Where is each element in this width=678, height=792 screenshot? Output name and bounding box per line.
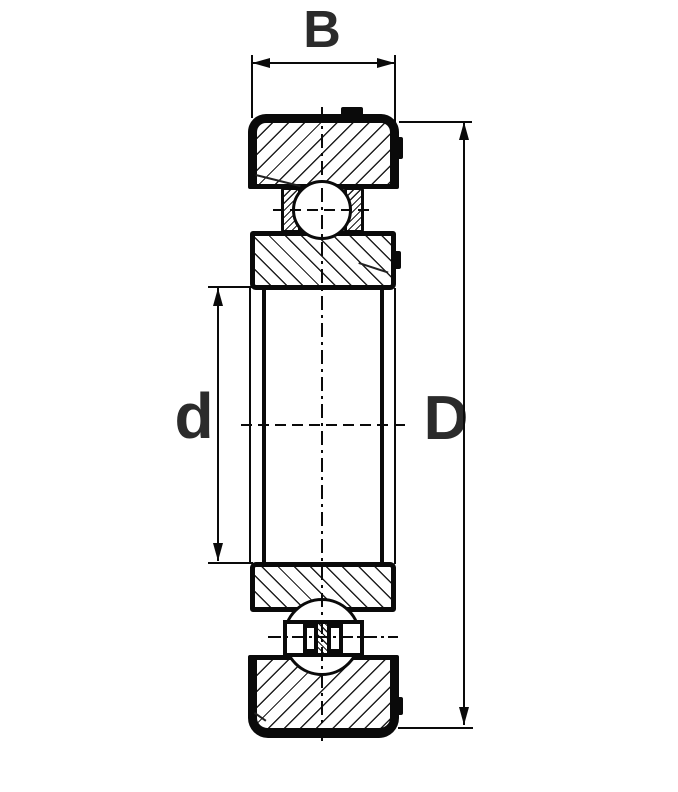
cage-rivet-core xyxy=(314,620,331,657)
outer-ring-right-tab xyxy=(394,137,403,159)
bearing-diagram: B d D xyxy=(0,0,678,792)
b-arrow-right xyxy=(377,58,395,68)
b-arrow-left xyxy=(252,58,270,68)
d-arrow-down xyxy=(213,543,223,561)
outer-ring-bottom-right-tab xyxy=(394,697,403,715)
bore-surface-line-left xyxy=(262,290,266,562)
d-extension-line-bottom xyxy=(208,562,253,564)
d-dimension-line xyxy=(217,288,219,561)
dd-arrow-down xyxy=(459,707,469,725)
bore-surface-line-right xyxy=(380,290,384,562)
outer-ring-top-groove-tab xyxy=(341,107,363,116)
bore-dimension-label: d xyxy=(172,384,216,448)
bearing-axis-line xyxy=(241,424,405,426)
ball-bottom-centerline xyxy=(268,636,398,638)
d-arrow-up xyxy=(213,288,223,306)
b-dimension-line xyxy=(252,62,395,64)
inner-ring-right-tab xyxy=(393,251,401,269)
bore-face-line-left xyxy=(249,288,251,564)
dd-arrow-up xyxy=(459,122,469,140)
vertical-centerline xyxy=(321,107,323,741)
width-dimension-label: B xyxy=(298,4,346,56)
dd-dimension-line xyxy=(463,122,465,725)
dd-extension-line-bottom xyxy=(398,727,473,729)
bore-face-line-right xyxy=(394,288,396,564)
